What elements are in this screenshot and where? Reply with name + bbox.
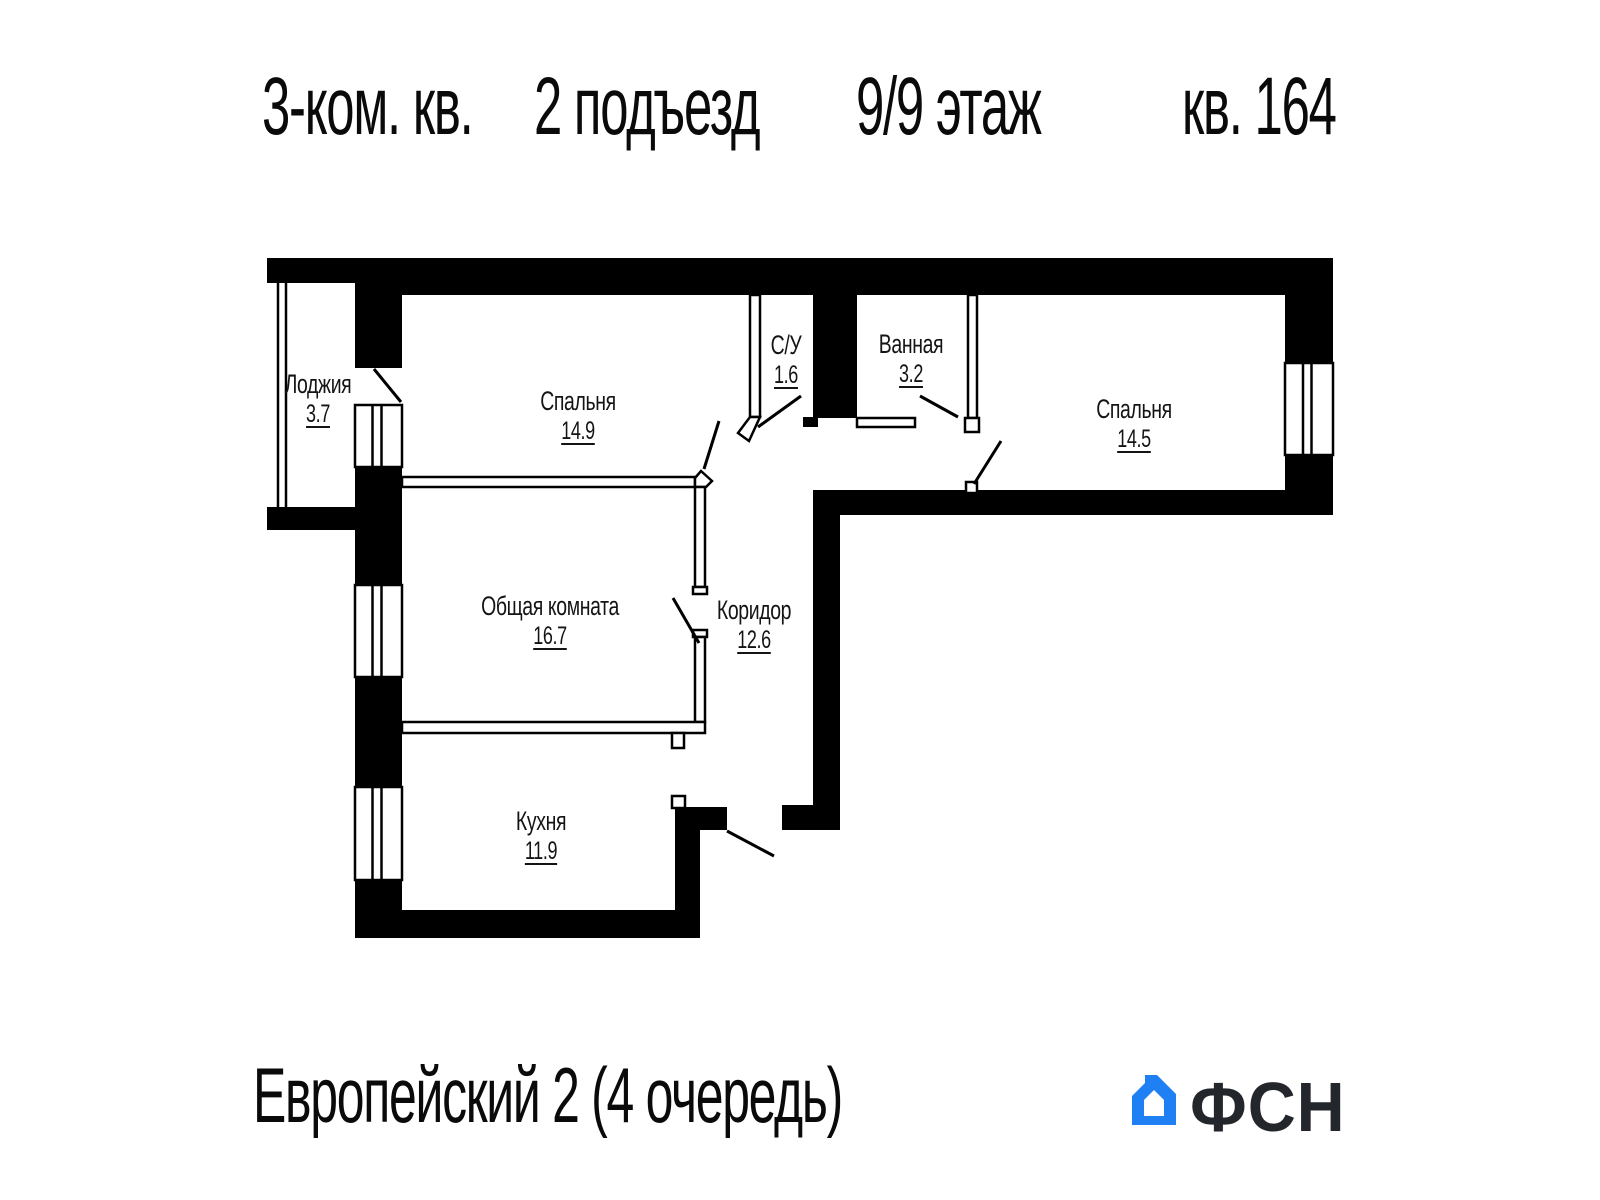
room-area: 12.6: [717, 625, 791, 656]
bedroom2-window: [1285, 363, 1333, 455]
wall-loggia-top: [267, 258, 402, 283]
room-name: Кухня: [516, 806, 566, 836]
wall-corridor-right: [813, 490, 840, 830]
wall-kitchen-bottom: [355, 910, 700, 938]
livingroom-door-leaf: [673, 598, 699, 643]
wall-loggia-bottom: [267, 507, 355, 530]
project-name: Европейский 2 (4 очередь): [253, 1056, 842, 1134]
house-icon: [1132, 1073, 1177, 1125]
logo-text: ФСН: [1190, 1072, 1346, 1142]
su-wall-left: [750, 295, 760, 417]
kitchen-window: [355, 787, 402, 880]
bathroom-door-jamb: [965, 418, 979, 432]
livingroom-window: [355, 585, 402, 677]
room-label-livingroom: Общая комната 16.7: [481, 591, 619, 652]
room-area: 1.6: [771, 360, 802, 391]
su-door-leaf: [758, 396, 801, 427]
room-label-corridor: Коридор 12.6: [717, 595, 791, 656]
room-area: 14.9: [540, 416, 616, 447]
room-area: 11.9: [516, 836, 566, 867]
kitchen-doorway-jamb-top: [672, 733, 684, 748]
kitchen-doorway-jamb-bottom: [672, 796, 685, 808]
bathroom-door-leaf: [920, 396, 958, 417]
bedroom1-door-leaf: [704, 421, 719, 469]
wall-rightwing-bottom: [840, 490, 1333, 515]
room-area: 16.7: [481, 621, 619, 652]
livingroom-wall-bottom: [402, 722, 705, 733]
su-wall-cap: [738, 417, 760, 441]
entrance-door-leaf: [727, 831, 774, 856]
bathroom-wall-bottom: [857, 418, 915, 427]
room-label-bathroom: Ванная 3.2: [879, 329, 943, 390]
wall-kitchen-right: [675, 830, 700, 938]
wall-left-b: [355, 467, 402, 585]
livingroom-wall-top: [402, 477, 695, 487]
room-name: Спальня: [540, 386, 616, 416]
door-leaves: [374, 369, 1001, 856]
balcony-window: [355, 405, 402, 467]
wall-left-a: [355, 283, 402, 368]
room-label-bedroom2: Спальня 14.5: [1096, 394, 1172, 455]
wall-right-upper: [1285, 295, 1333, 363]
livingroom-wall-right-upper: [695, 487, 705, 587]
room-area: 3.7: [285, 399, 352, 430]
balcony-door-leaf: [374, 369, 401, 402]
room-name: Лоджия: [285, 369, 352, 399]
room-name: Коридор: [717, 595, 791, 625]
livingroom-wall-right-lower: [695, 637, 705, 722]
room-area: 3.2: [879, 359, 943, 390]
wall-top: [402, 258, 1333, 295]
room-area: 14.5: [1096, 424, 1172, 455]
room-name: С/У: [771, 330, 802, 360]
bathroom-wall-right: [968, 295, 977, 418]
room-name: Спальня: [1096, 394, 1172, 424]
wall-mid-su-bath: [813, 295, 857, 418]
wall-entrance-foot: [782, 805, 813, 830]
house-icon-shape: [1132, 1075, 1176, 1125]
wall-left-c: [355, 677, 402, 787]
wall-kitchen-right-top: [675, 807, 727, 830]
wall-su-jamb: [803, 417, 818, 427]
room-label-loggia: Лоджия 3.7: [285, 369, 352, 430]
livingroom-wall-corner: [695, 471, 712, 487]
livingroom-door-jamb: [693, 587, 707, 594]
room-name: Общая комната: [481, 591, 619, 621]
room-label-kitchen: Кухня 11.9: [516, 806, 566, 867]
floor-plan: [0, 0, 1600, 1200]
room-label-su: С/У 1.6: [771, 330, 802, 391]
room-label-bedroom1: Спальня 14.9: [540, 386, 616, 447]
bedroom2-door-leaf: [974, 441, 1001, 484]
room-name: Ванная: [879, 329, 943, 359]
